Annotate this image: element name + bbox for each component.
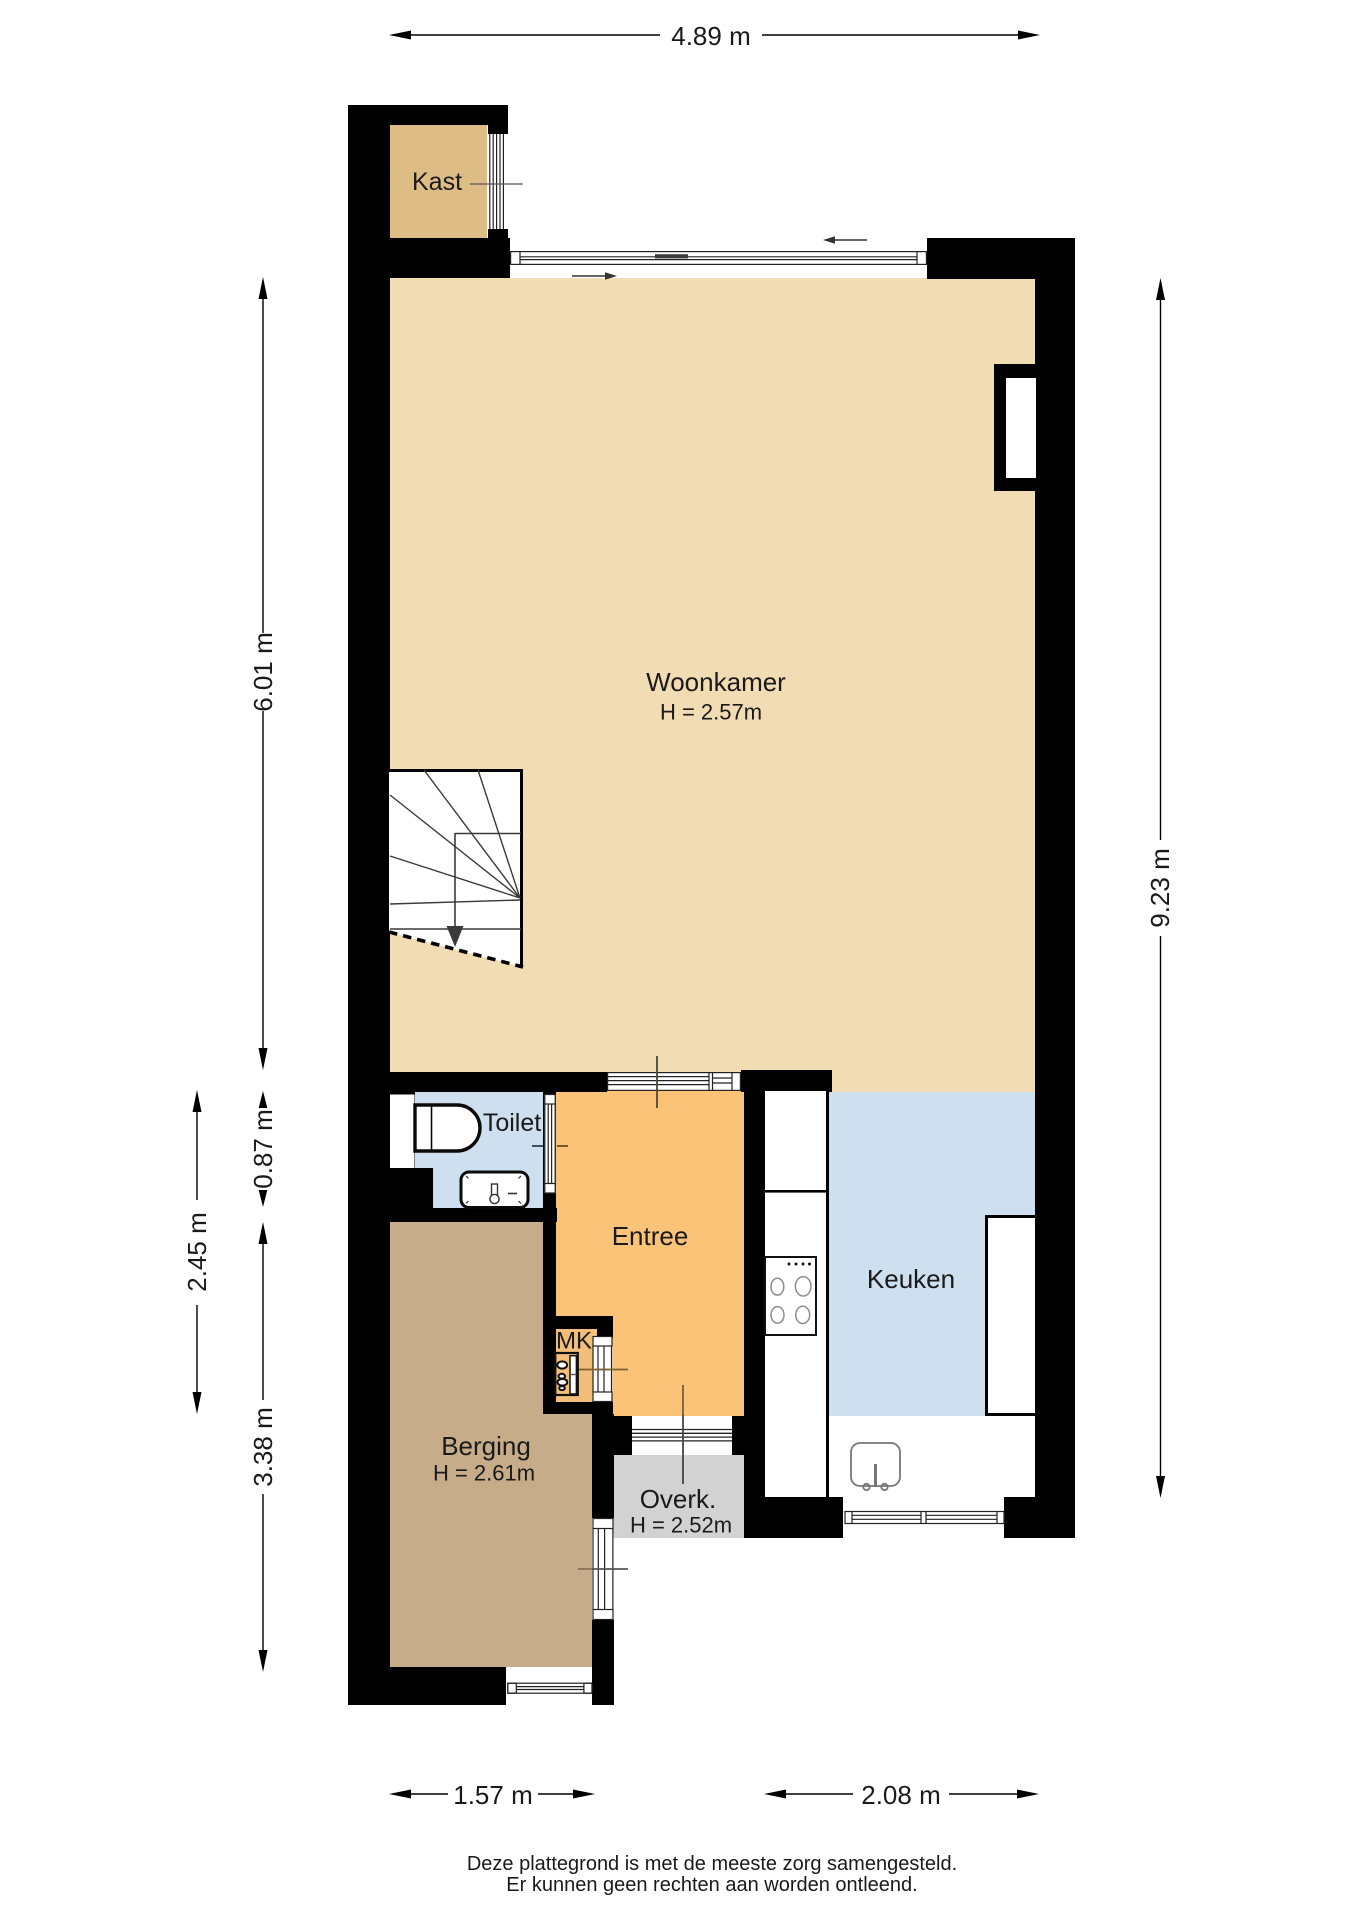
- svg-text:H = 2.61m: H = 2.61m: [433, 1461, 535, 1486]
- svg-text:1.57 m: 1.57 m: [453, 1780, 533, 1810]
- svg-text:0.87 m: 0.87 m: [248, 1109, 278, 1189]
- svg-text:Keuken: Keuken: [867, 1264, 955, 1294]
- svg-text:Kast: Kast: [412, 168, 462, 196]
- svg-text:Woonkamer: Woonkamer: [646, 667, 786, 697]
- svg-text:4.89 m: 4.89 m: [671, 21, 751, 51]
- svg-text:Deze plattegrond is met de mee: Deze plattegrond is met de meeste zorg s…: [467, 1853, 957, 1875]
- svg-text:9.23 m: 9.23 m: [1145, 848, 1175, 928]
- svg-text:H = 2.52m: H = 2.52m: [630, 1513, 732, 1538]
- svg-text:2.08 m: 2.08 m: [861, 1780, 941, 1810]
- svg-text:3.38 m: 3.38 m: [248, 1407, 278, 1487]
- svg-text:H = 2.57m: H = 2.57m: [660, 700, 762, 725]
- svg-text:Berging: Berging: [441, 1431, 531, 1461]
- svg-text:Toilet: Toilet: [483, 1109, 541, 1137]
- svg-text:Overk.: Overk.: [640, 1484, 717, 1514]
- svg-text:6.01 m: 6.01 m: [248, 632, 278, 712]
- svg-text:MK: MK: [556, 1328, 592, 1355]
- svg-text:Er kunnen geen rechten aan wor: Er kunnen geen rechten aan worden ontlee…: [506, 1874, 917, 1896]
- svg-text:2.45 m: 2.45 m: [182, 1212, 212, 1292]
- svg-text:Entree: Entree: [612, 1221, 689, 1251]
